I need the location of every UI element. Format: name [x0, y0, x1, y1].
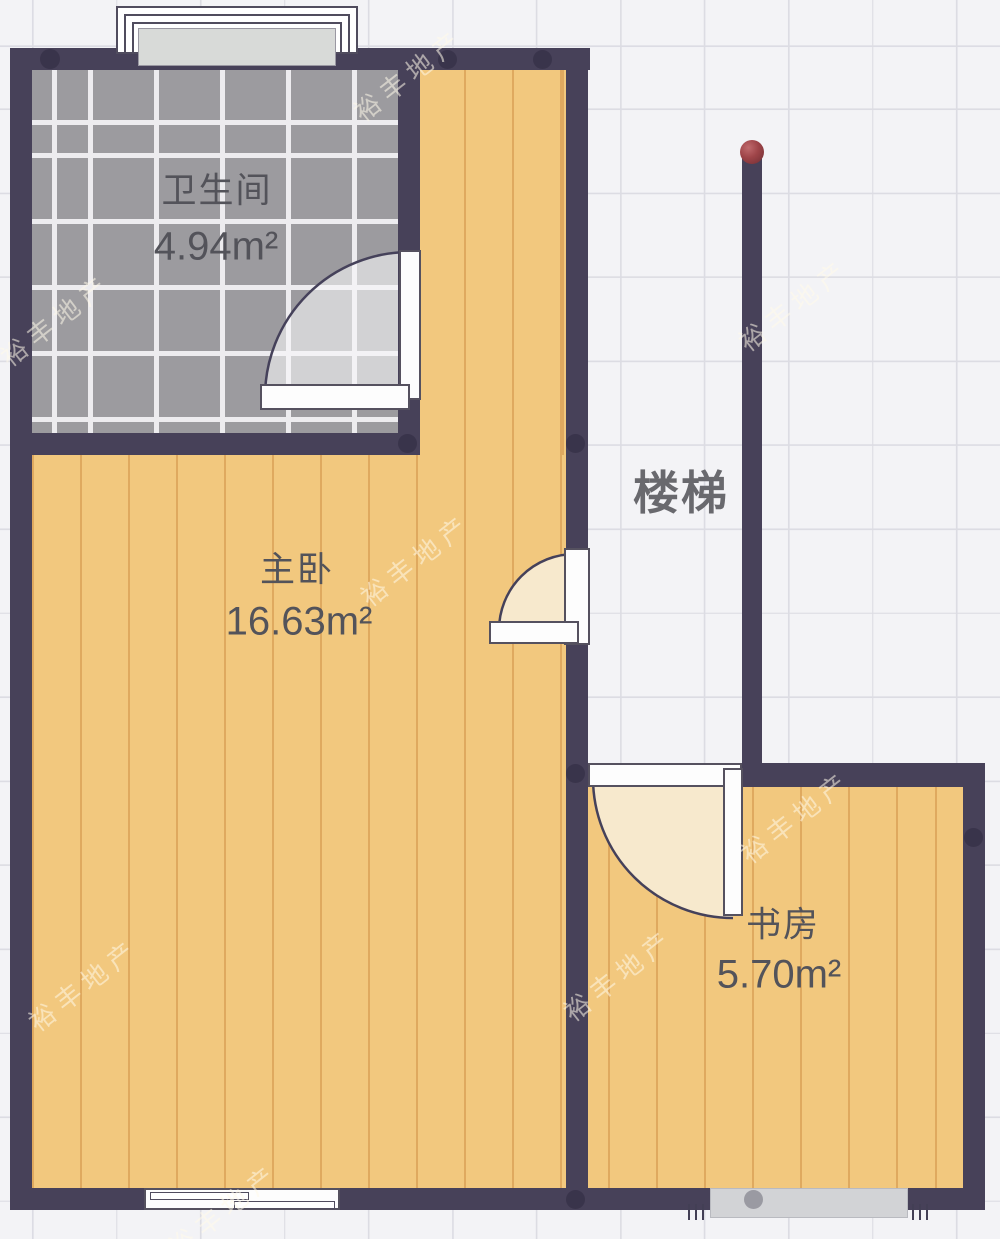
wall-stair-partition — [742, 150, 762, 765]
study-window-tick — [688, 1204, 690, 1220]
study-label: 书房 — [746, 897, 820, 948]
wall-study-top — [742, 763, 985, 787]
bedroom-door-leaf — [489, 621, 579, 644]
bathroom-door-leaf — [260, 384, 410, 410]
bedroom-floor-upper-strip — [420, 70, 566, 460]
wall-left — [10, 48, 32, 1210]
study-window-tick — [702, 1204, 704, 1220]
wall-bathroom-bottom — [10, 433, 420, 455]
wall-joint — [398, 434, 417, 453]
wall-joint — [40, 49, 60, 69]
study-window-tick — [919, 1204, 921, 1220]
stairwell-area — [588, 70, 742, 763]
floor-plan: 卫生间 4.94m² 主卧 16.63m² 楼梯 书房 5.70m² 裕丰地产 … — [0, 0, 1000, 1239]
study-window-tick — [912, 1204, 914, 1220]
study-window-sill — [710, 1188, 908, 1218]
study-window-tick — [695, 1204, 697, 1220]
bathroom-door-frame — [399, 250, 421, 400]
study-area: 5.70m² — [717, 953, 842, 998]
bedroom-label: 主卧 — [260, 542, 334, 593]
study-door-leaf — [723, 768, 743, 916]
study-door-frame — [588, 763, 742, 787]
stair-post-cap — [740, 140, 764, 164]
bedroom-sliding-window-pane-2 — [234, 1201, 335, 1209]
wall-joint — [744, 1190, 763, 1209]
wall-joint — [566, 434, 585, 453]
study-door-swing — [585, 768, 745, 928]
stairs-label: 楼梯 — [633, 457, 729, 523]
wall-joint — [566, 764, 585, 783]
study-window-tick — [926, 1204, 928, 1220]
bedroom-sliding-window-pane-1 — [150, 1192, 249, 1200]
wall-joint — [438, 50, 457, 69]
wall-joint — [964, 828, 983, 847]
bedroom-area: 16.63m² — [226, 600, 373, 645]
bathroom-label: 卫生间 — [161, 163, 272, 214]
wall-joint — [566, 1190, 585, 1209]
bathroom-area: 4.94m² — [154, 225, 279, 270]
bathroom-window-sill — [138, 28, 336, 66]
wall-joint — [533, 50, 552, 69]
